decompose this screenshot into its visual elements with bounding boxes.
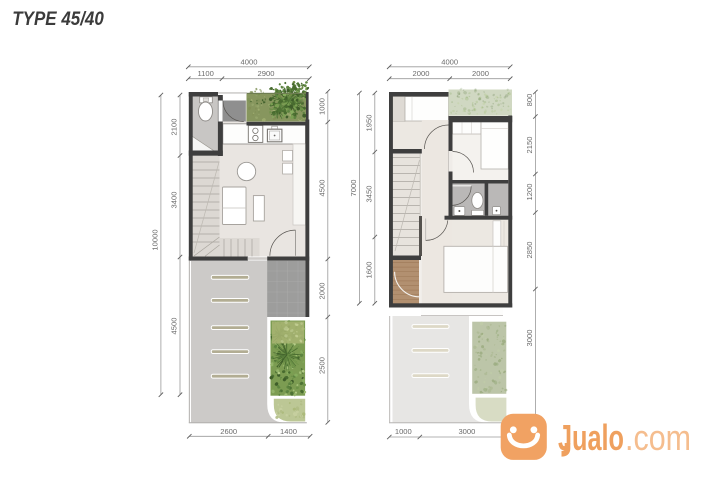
- svg-text:3000: 3000: [525, 330, 534, 347]
- svg-text:TYPE 45/40: TYPE 45/40: [12, 9, 104, 30]
- svg-text:3000: 3000: [458, 427, 475, 436]
- svg-text:2500: 2500: [317, 357, 326, 374]
- svg-text:800: 800: [525, 94, 534, 107]
- svg-text:2100: 2100: [170, 119, 179, 136]
- svg-text:1200: 1200: [525, 184, 534, 201]
- svg-text:4500: 4500: [170, 318, 179, 335]
- svg-text:1000: 1000: [395, 427, 412, 436]
- svg-text:.com: .com: [625, 417, 691, 458]
- svg-text:2150: 2150: [525, 137, 534, 154]
- svg-text:4000: 4000: [241, 57, 258, 66]
- svg-text:4000: 4000: [441, 57, 458, 66]
- svg-text:2600: 2600: [220, 427, 237, 436]
- svg-text:2850: 2850: [525, 242, 534, 259]
- svg-text:1950: 1950: [365, 115, 374, 132]
- svg-text:2000: 2000: [472, 69, 489, 78]
- svg-text:3450: 3450: [365, 186, 374, 203]
- svg-text:1000: 1000: [317, 98, 326, 115]
- svg-text:1600: 1600: [365, 262, 374, 279]
- svg-text:7000: 7000: [349, 180, 358, 197]
- svg-text:2000: 2000: [413, 69, 430, 78]
- svg-text:1400: 1400: [280, 427, 297, 436]
- svg-text:2000: 2000: [317, 283, 326, 300]
- svg-text:3400: 3400: [170, 192, 179, 209]
- svg-text:2900: 2900: [258, 69, 275, 78]
- svg-text:1100: 1100: [198, 69, 214, 78]
- svg-text:4500: 4500: [317, 180, 326, 197]
- svg-text:10000: 10000: [151, 229, 160, 250]
